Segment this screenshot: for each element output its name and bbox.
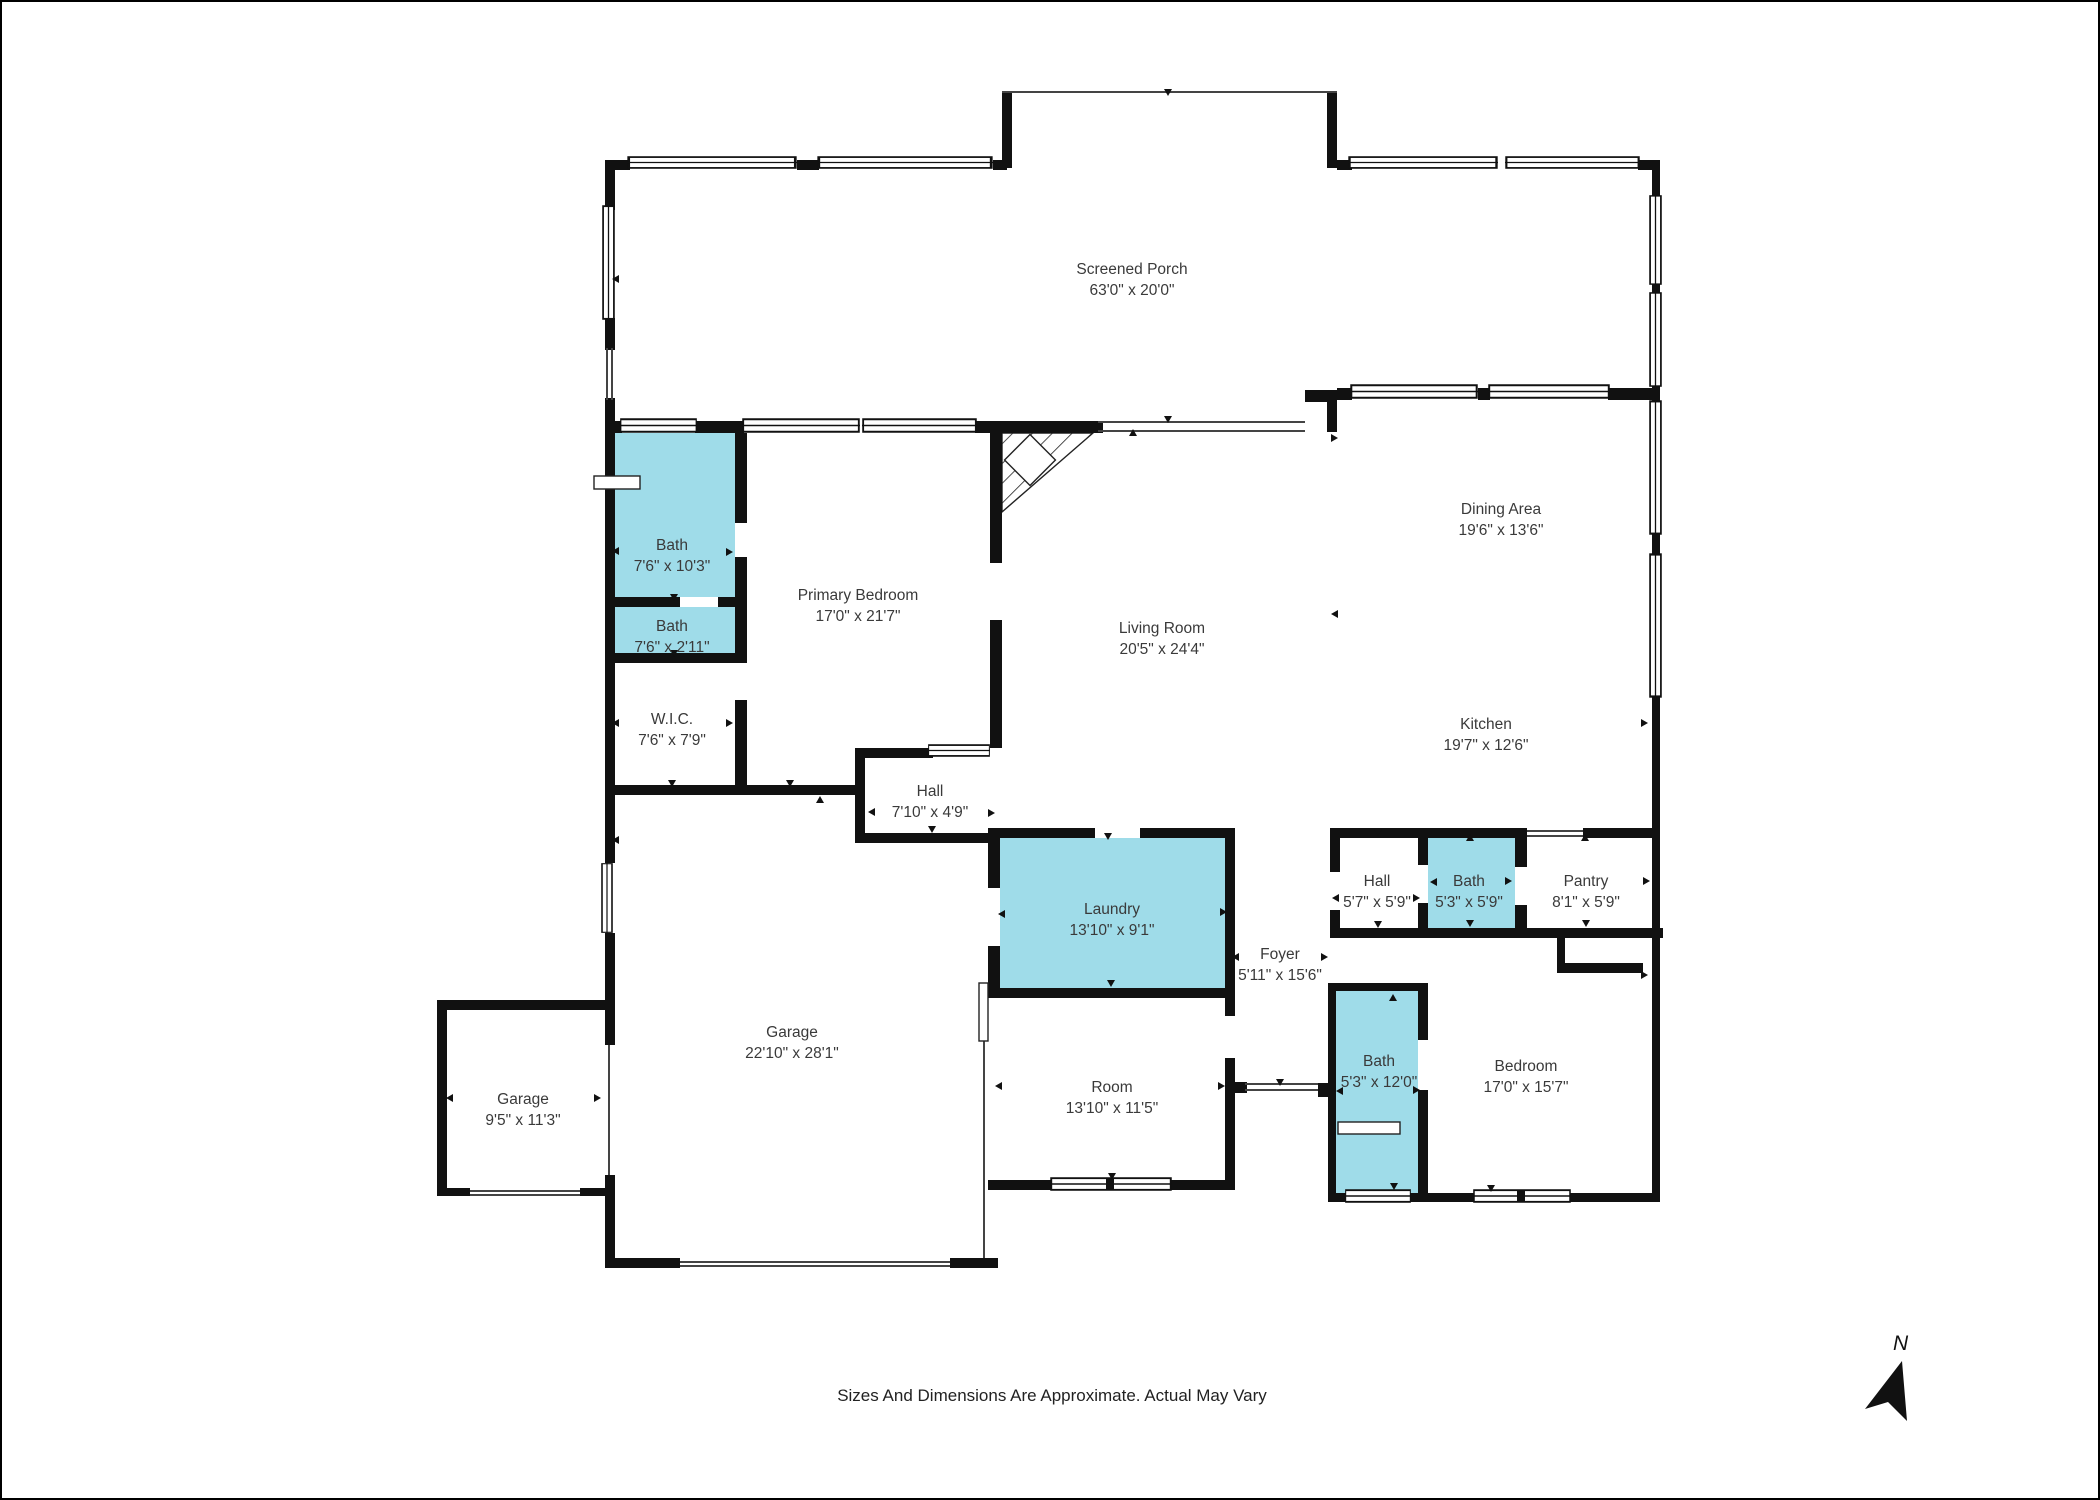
room-dims: 5'3" x 5'9" [1435,892,1503,913]
room-name: Room [1066,1077,1158,1098]
room-dims: 7'10" x 4'9" [892,802,968,823]
room-name: Bath [1341,1051,1417,1072]
floor-plan-page: Screened Porch 63'0" x 20'0" Bath 7'6" x… [0,0,2100,1500]
room-label-bath-hall: Bath 5'3" x 5'9" [1435,871,1503,913]
north-label: N [1893,1332,1908,1356]
room-name: Bath [634,535,710,556]
room-name: Garage [745,1022,839,1043]
room-name: Foyer [1238,944,1322,965]
room-dims: 5'7" x 5'9" [1343,892,1411,913]
room-label-garage-small: Garage 9'5" x 11'3" [485,1089,560,1131]
room-dims: 13'10" x 11'5" [1066,1098,1158,1119]
compass: N [1845,1330,1935,1440]
room-dims: 5'3" x 12'0" [1341,1072,1417,1093]
room-name: Dining Area [1458,499,1543,520]
room-dims: 8'1" x 5'9" [1552,892,1620,913]
room-label-wic: W.I.C. 7'6" x 7'9" [638,709,706,751]
room-label-garage-main: Garage 22'10" x 28'1" [745,1022,839,1064]
room-name: Primary Bedroom [798,585,919,606]
room-name: Hall [892,781,968,802]
room-label-dining-area: Dining Area 19'6" x 13'6" [1458,499,1543,541]
room-label-laundry: Laundry 13'10" x 9'1" [1069,899,1154,941]
room-label-primary-bedroom: Primary Bedroom 17'0" x 21'7" [798,585,919,627]
room-name: Garage [485,1089,560,1110]
room-dims: 20'5" x 24'4" [1119,639,1205,660]
room-label-bedroom: Bedroom 17'0" x 15'7" [1483,1056,1568,1098]
room-dims: 63'0" x 20'0" [1076,280,1187,301]
room-name: Pantry [1552,871,1620,892]
room-name: Bath [634,616,709,637]
room-label-kitchen: Kitchen 19'7" x 12'6" [1443,714,1528,756]
room-label-room: Room 13'10" x 11'5" [1066,1077,1158,1119]
room-label-screened-porch: Screened Porch 63'0" x 20'0" [1076,259,1187,301]
room-name: Bedroom [1483,1056,1568,1077]
room-label-bath-bedroom: Bath 5'3" x 12'0" [1341,1051,1417,1093]
room-dims: 9'5" x 11'3" [485,1110,560,1131]
room-name: Kitchen [1443,714,1528,735]
room-dims: 5'11" x 15'6" [1238,965,1322,986]
room-name: W.I.C. [638,709,706,730]
room-dims: 17'0" x 15'7" [1483,1077,1568,1098]
room-dims: 7'6" x 7'9" [638,730,706,751]
room-dims: 22'10" x 28'1" [745,1043,839,1064]
room-label-pantry: Pantry 8'1" x 5'9" [1552,871,1620,913]
floor-plan-drawing [0,0,2100,1500]
room-dims: 19'6" x 13'6" [1458,520,1543,541]
room-label-foyer: Foyer 5'11" x 15'6" [1238,944,1322,986]
room-label-bath-small: Bath 7'6" x 2'11" [634,616,709,658]
room-label-hall-west: Hall 7'10" x 4'9" [892,781,968,823]
room-name: Screened Porch [1076,259,1187,280]
room-name: Hall [1343,871,1411,892]
room-dims: 17'0" x 21'7" [798,606,919,627]
stairs-hatch [1002,433,1093,512]
disclaimer-text: Sizes And Dimensions Are Approximate. Ac… [837,1386,1267,1406]
room-name: Living Room [1119,618,1205,639]
room-label-hall-east: Hall 5'7" x 5'9" [1343,871,1411,913]
room-label-bath-primary: Bath 7'6" x 10'3" [634,535,710,577]
room-dims: 19'7" x 12'6" [1443,735,1528,756]
room-dims: 7'6" x 2'11" [634,637,709,658]
room-name: Laundry [1069,899,1154,920]
room-dims: 7'6" x 10'3" [634,556,710,577]
walls-layer [437,91,1663,1268]
room-dims: 13'10" x 9'1" [1069,920,1154,941]
room-label-living-room: Living Room 20'5" x 24'4" [1119,618,1205,660]
room-name: Bath [1435,871,1503,892]
